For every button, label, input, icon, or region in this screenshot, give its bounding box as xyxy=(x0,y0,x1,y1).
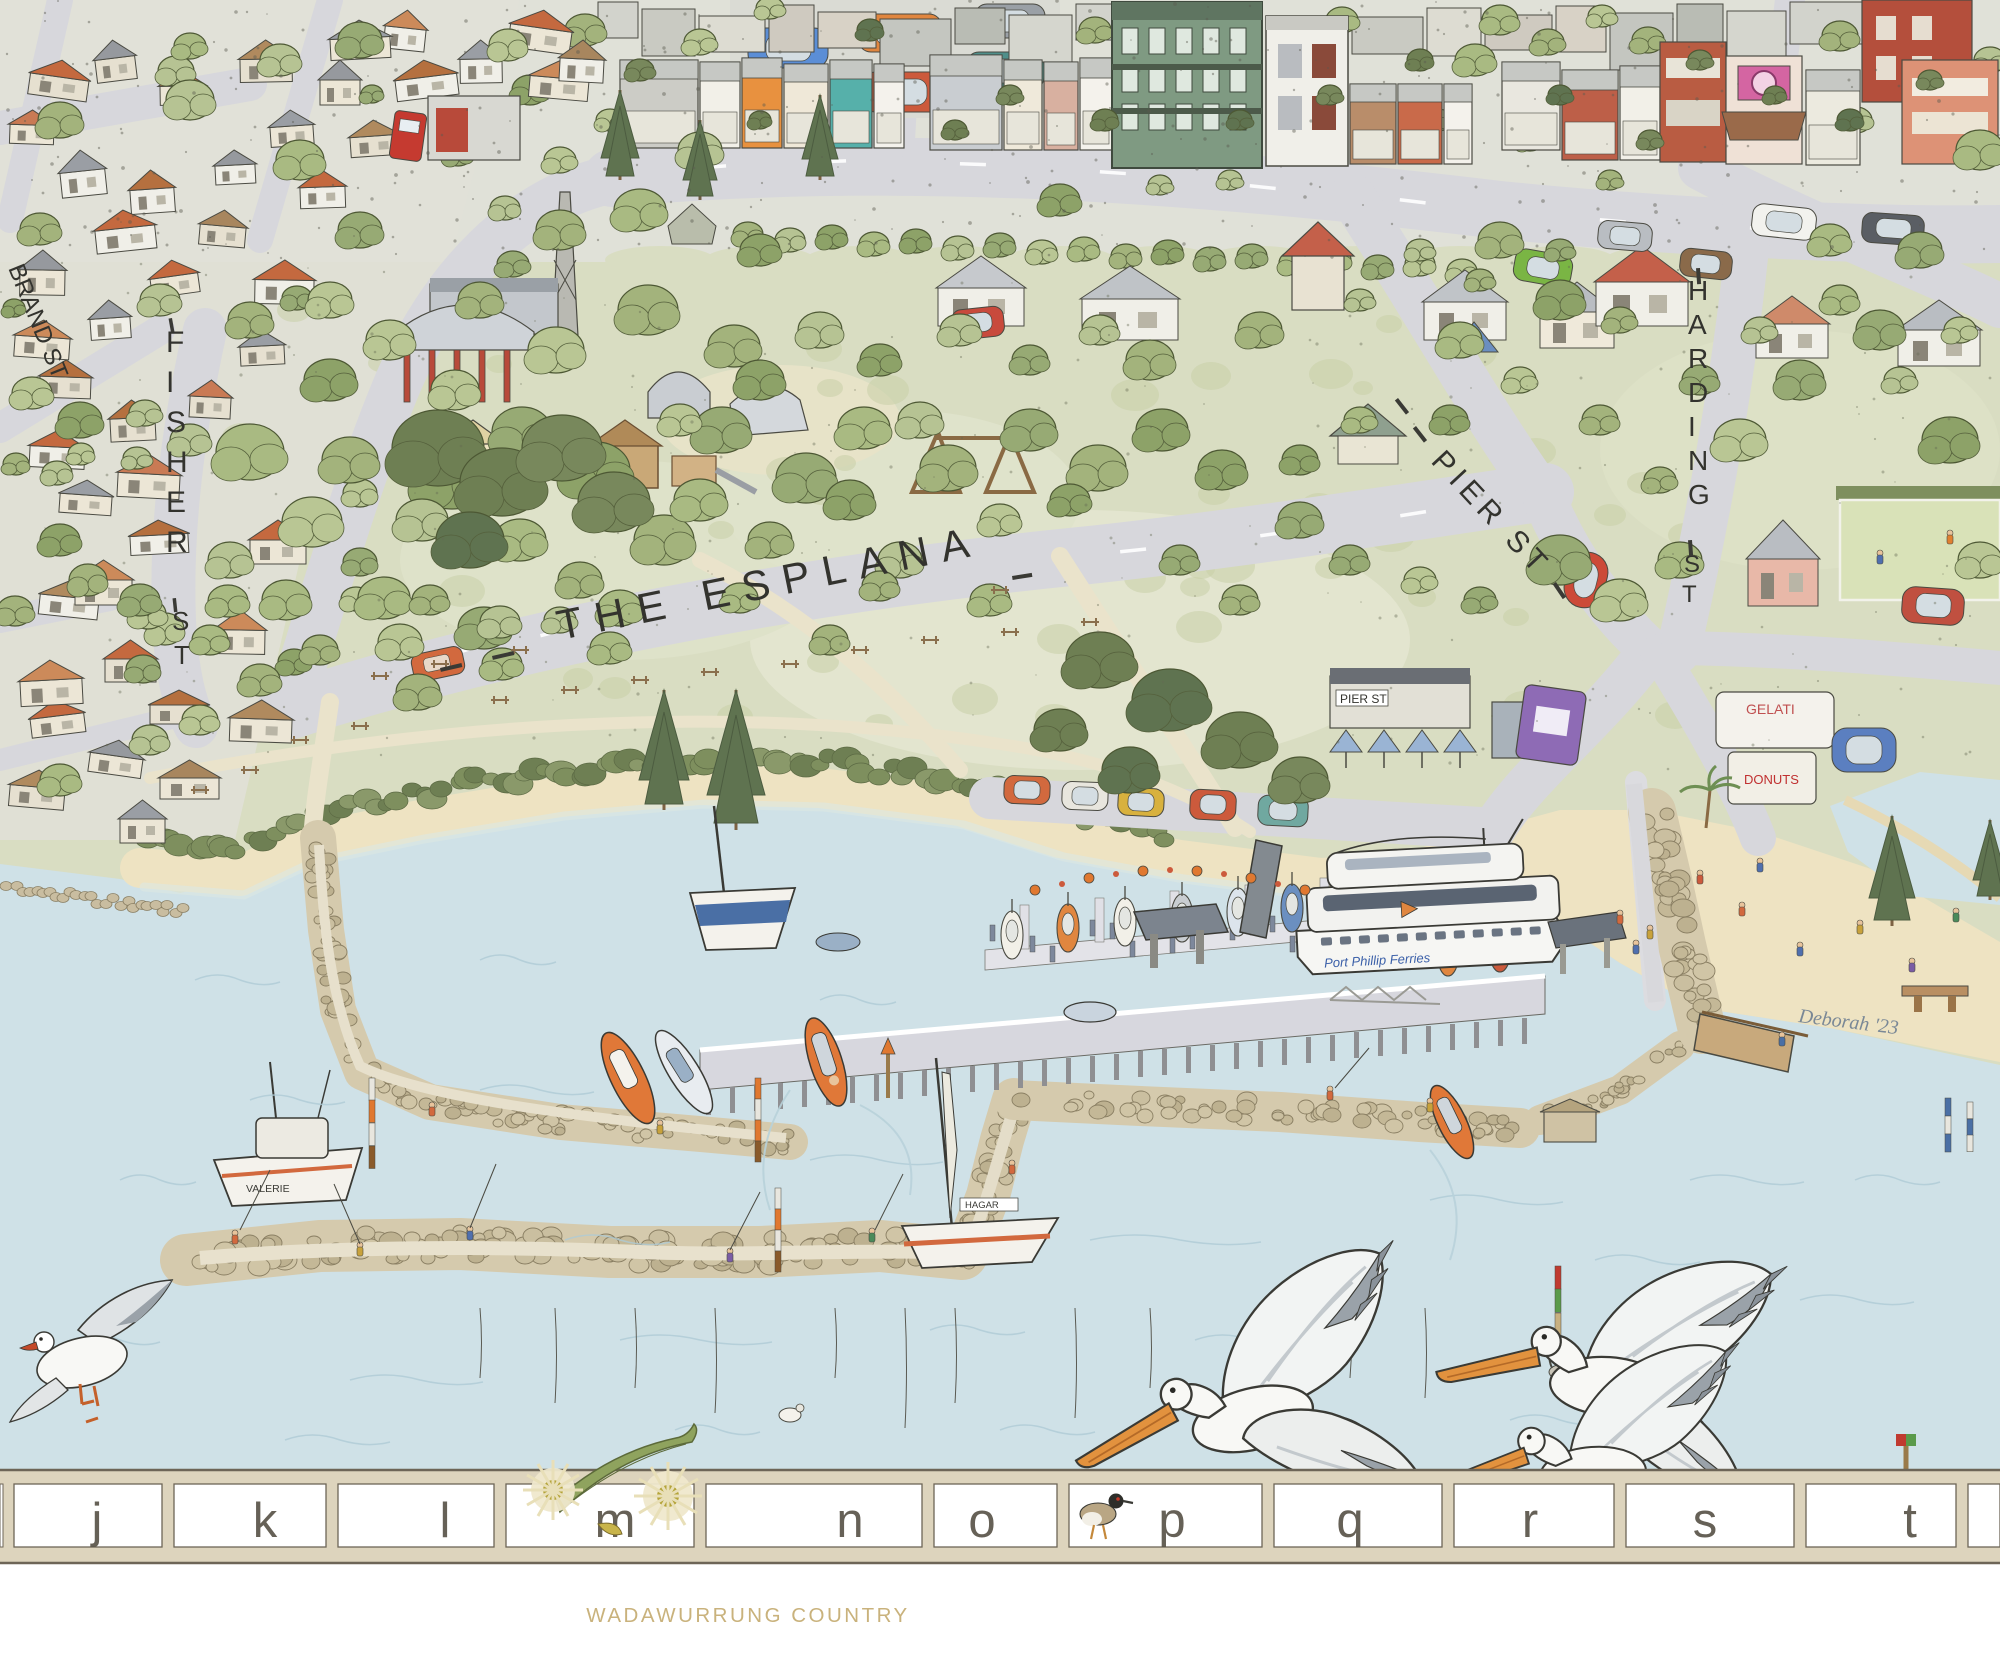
svg-text:VALERIE: VALERIE xyxy=(246,1183,290,1195)
svg-text:H: H xyxy=(166,446,188,479)
svg-text:A: A xyxy=(1688,309,1707,340)
svg-text:R: R xyxy=(166,526,188,559)
svg-text:WADAWURRUNG COUNTRY: WADAWURRUNG COUNTRY xyxy=(586,1604,909,1627)
svg-text:o: o xyxy=(968,1494,995,1548)
svg-text:D: D xyxy=(1688,377,1708,408)
svg-text:t: t xyxy=(1903,1494,1917,1548)
svg-text:j: j xyxy=(90,1494,103,1548)
svg-text:F: F xyxy=(166,326,184,359)
svg-text:I: I xyxy=(166,366,174,399)
svg-text:GELATI: GELATI xyxy=(1746,701,1795,717)
svg-text:s: s xyxy=(1693,1494,1718,1548)
svg-text:S: S xyxy=(166,406,186,439)
svg-text:q: q xyxy=(1336,1494,1363,1548)
svg-text:PIER ST: PIER ST xyxy=(1340,692,1387,706)
svg-text:I: I xyxy=(1688,411,1696,442)
svg-text:R: R xyxy=(1688,343,1708,374)
svg-text:T: T xyxy=(174,640,190,670)
svg-text:DONUTS: DONUTS xyxy=(1744,772,1799,787)
svg-text:N: N xyxy=(1688,445,1708,476)
svg-text:k: k xyxy=(253,1494,278,1548)
svg-text:l: l xyxy=(440,1494,451,1548)
svg-text:m: m xyxy=(595,1494,636,1548)
svg-text:n: n xyxy=(836,1494,863,1548)
svg-text:HAGAR: HAGAR xyxy=(965,1200,999,1211)
svg-text:p: p xyxy=(1158,1494,1185,1548)
svg-text:G: G xyxy=(1688,479,1710,510)
svg-text:T: T xyxy=(1682,581,1697,608)
svg-text:r: r xyxy=(1522,1494,1538,1548)
svg-text:E: E xyxy=(166,486,186,519)
